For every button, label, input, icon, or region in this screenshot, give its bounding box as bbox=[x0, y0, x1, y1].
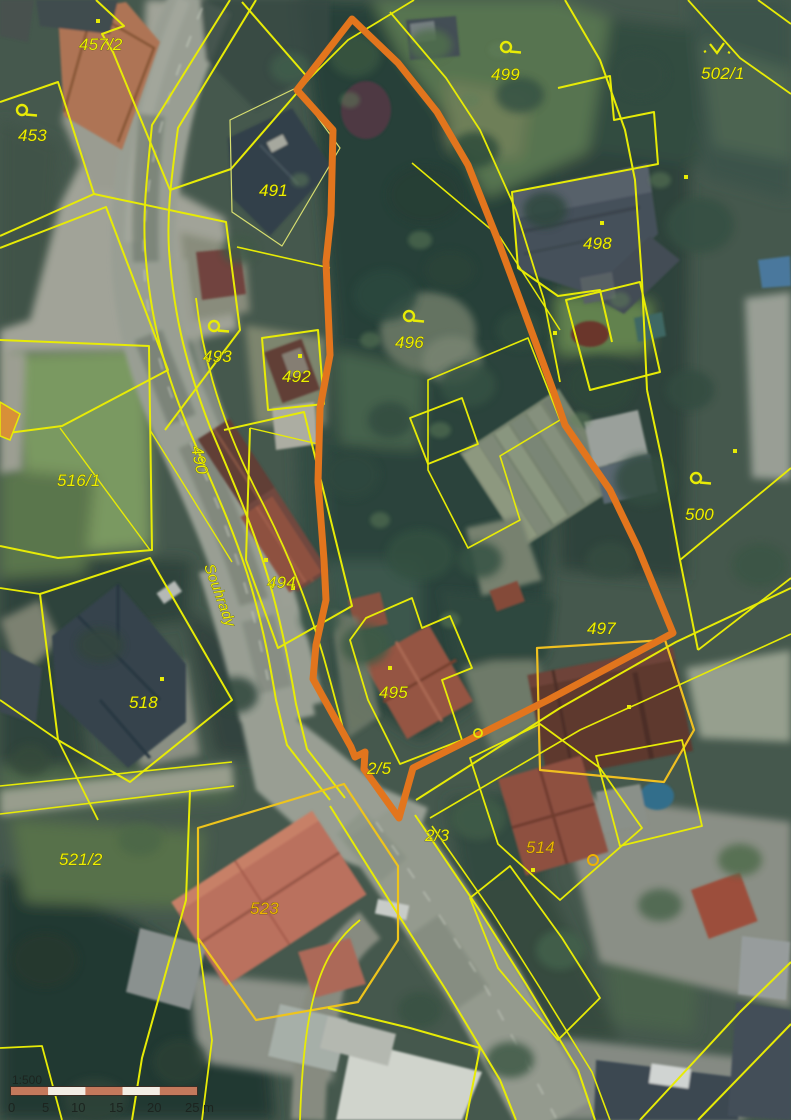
svg-text:20: 20 bbox=[147, 1100, 161, 1115]
svg-text:496: 496 bbox=[395, 333, 424, 352]
svg-text:491: 491 bbox=[259, 181, 288, 200]
svg-text:457/2: 457/2 bbox=[79, 35, 123, 54]
svg-text:516/1: 516/1 bbox=[57, 471, 101, 490]
svg-text:25 m: 25 m bbox=[185, 1100, 214, 1115]
svg-text:453: 453 bbox=[18, 126, 47, 145]
svg-text:498: 498 bbox=[583, 234, 612, 253]
svg-text:523: 523 bbox=[250, 899, 279, 918]
svg-text:497: 497 bbox=[587, 619, 616, 638]
svg-text:492: 492 bbox=[282, 367, 311, 386]
svg-text:494: 494 bbox=[267, 573, 296, 592]
svg-text:499: 499 bbox=[491, 65, 520, 84]
svg-text:15: 15 bbox=[109, 1100, 123, 1115]
svg-text:500: 500 bbox=[685, 505, 714, 524]
svg-text:2/3: 2/3 bbox=[424, 826, 450, 845]
svg-text:493: 493 bbox=[203, 347, 232, 366]
svg-text:1:500: 1:500 bbox=[12, 1073, 42, 1087]
svg-text:521/2: 521/2 bbox=[59, 850, 103, 869]
svg-text:10: 10 bbox=[71, 1100, 85, 1115]
svg-text:495: 495 bbox=[379, 683, 408, 702]
svg-text:2/5: 2/5 bbox=[366, 759, 392, 778]
svg-text:0: 0 bbox=[8, 1100, 15, 1115]
svg-text:518: 518 bbox=[129, 693, 158, 712]
svg-text:502/1: 502/1 bbox=[701, 64, 745, 83]
svg-text:514: 514 bbox=[526, 838, 555, 857]
svg-text:5: 5 bbox=[42, 1100, 49, 1115]
